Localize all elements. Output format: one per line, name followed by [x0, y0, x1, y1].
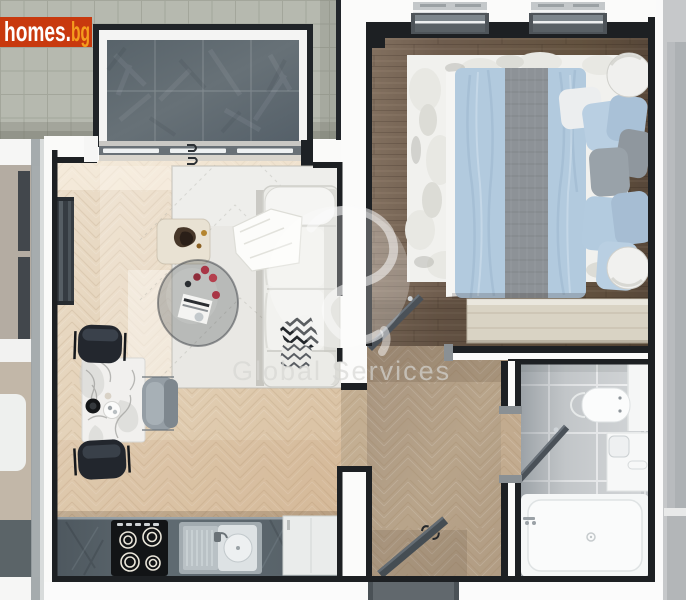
svg-text:homes.: homes.	[4, 16, 71, 47]
svg-text:Global Services: Global Services	[232, 356, 451, 386]
svg-text:bg: bg	[71, 16, 90, 47]
